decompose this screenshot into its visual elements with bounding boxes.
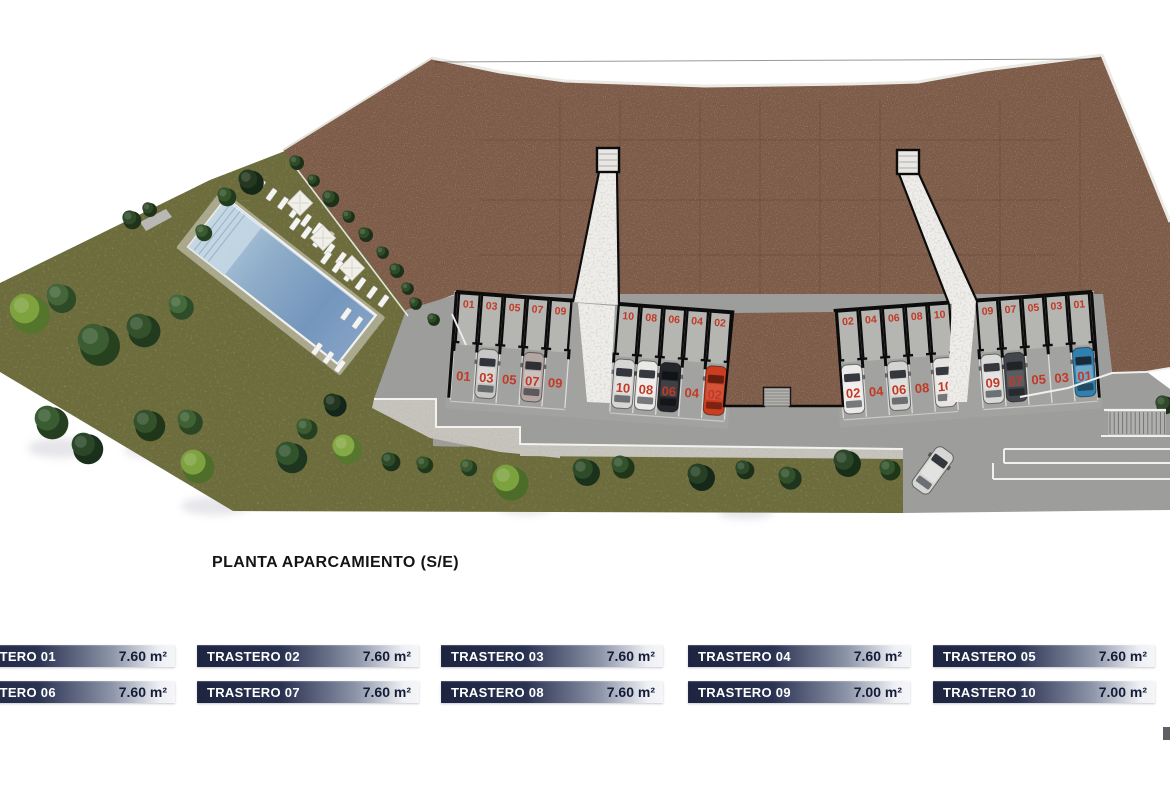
legend-area: 7.00 m² [854,684,902,700]
svg-text:01: 01 [1073,298,1086,311]
legend-item-trastero-03: TRASTERO 037.60 m² [441,645,663,667]
parking-site-plan: 0103050709010305070910080604021008060402… [0,0,1170,640]
legend-item-trastero-10: TRASTERO 107.00 m² [933,681,1155,703]
svg-text:10: 10 [622,310,635,323]
central-roof-block [724,312,843,406]
svg-text:02: 02 [714,317,727,330]
svg-text:05: 05 [502,371,518,387]
svg-text:01: 01 [462,298,475,311]
svg-text:06: 06 [668,313,681,326]
svg-text:03: 03 [1050,300,1063,313]
legend-label: TRASTERO 04 [698,649,791,664]
svg-text:06: 06 [888,312,901,325]
svg-text:02: 02 [707,387,723,403]
svg-text:09: 09 [554,305,567,318]
svg-text:04: 04 [865,314,878,327]
legend-area: 7.60 m² [119,684,167,700]
legend-item-trastero-04: TRASTERO 047.60 m² [688,645,910,667]
legend-area: 7.60 m² [854,648,902,664]
legend-label: TRASTERO 02 [207,649,300,664]
svg-text:10: 10 [933,309,946,322]
legend-area: 7.60 m² [363,684,411,700]
svg-text:07: 07 [524,373,540,389]
legend-item-trastero-09: TRASTERO 097.00 m² [688,681,910,703]
legend-area: 7.00 m² [1099,684,1147,700]
svg-text:05: 05 [1027,302,1040,315]
legend-area: 7.60 m² [119,648,167,664]
legend-item-trastero-07: TRASTERO 077.60 m² [197,681,419,703]
page-title: PLANTA APARCAMIENTO (S/E) [212,554,459,572]
svg-text:08: 08 [638,382,654,398]
legend-label: TRASTERO 10 [943,685,1036,700]
central-stairs [764,388,790,406]
legend-item-trastero-06: TRASTERO 067.60 m² [0,681,175,703]
svg-text:06: 06 [661,383,677,399]
svg-text:03: 03 [1054,370,1070,386]
svg-text:10: 10 [615,380,631,396]
svg-text:08: 08 [645,312,658,325]
roadside-stairs [1108,411,1166,435]
legend-area: 7.60 m² [607,684,655,700]
legend-label: TRASTERO 05 [943,649,1036,664]
legend-area: 7.60 m² [1099,648,1147,664]
svg-text:09: 09 [547,375,563,391]
watermark-fragment [1163,727,1170,740]
legend-area: 7.60 m² [363,648,411,664]
legend-label: TRASTERO 08 [451,685,544,700]
legend-area: 7.60 m² [607,648,655,664]
svg-text:08: 08 [914,380,930,396]
svg-text:04: 04 [691,315,704,328]
svg-text:01: 01 [456,368,472,384]
legend-item-trastero-02: TRASTERO 027.60 m² [197,645,419,667]
svg-text:07: 07 [1004,303,1017,316]
svg-text:08: 08 [911,310,924,323]
svg-text:02: 02 [842,315,855,328]
legend-label: TRASTERO 03 [451,649,544,664]
svg-text:04: 04 [868,383,884,399]
legend-label: TRASTERO 01 [0,649,56,664]
svg-text:02: 02 [845,385,861,401]
legend-label: TRASTERO 09 [698,685,791,700]
svg-text:06: 06 [891,382,907,398]
svg-text:05: 05 [1031,371,1047,387]
legend-label: TRASTERO 07 [207,685,300,700]
svg-text:04: 04 [684,385,700,401]
svg-text:03: 03 [485,300,498,313]
legend-item-trastero-01: TRASTERO 017.60 m² [0,645,175,667]
svg-text:09: 09 [985,375,1001,391]
svg-text:09: 09 [981,305,994,318]
svg-text:03: 03 [479,370,495,386]
svg-text:07: 07 [1008,373,1024,389]
legend-item-trastero-08: TRASTERO 087.60 m² [441,681,663,703]
legend-label: TRASTERO 06 [0,685,56,700]
svg-text:05: 05 [508,302,521,315]
site-plan-page: 0103050709010305070910080604021008060402… [0,0,1170,785]
svg-text:07: 07 [531,303,544,316]
legend-item-trastero-05: TRASTERO 057.60 m² [933,645,1155,667]
